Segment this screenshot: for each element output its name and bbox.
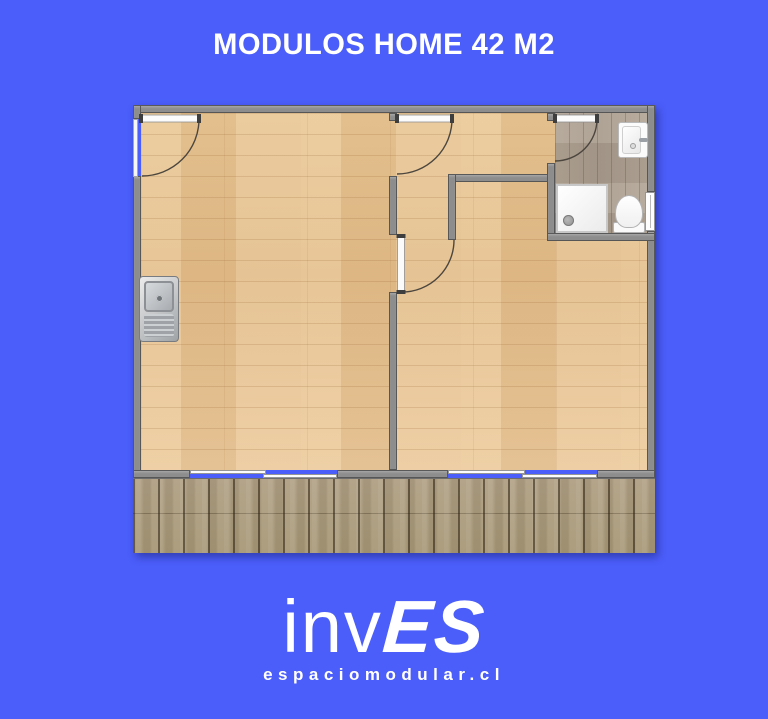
logo-wordmark: invES (0, 590, 768, 664)
sink-drain (156, 295, 163, 302)
door-hinge (397, 234, 406, 238)
logo-text-bold: ES (380, 590, 488, 664)
hall-door-leaf (397, 115, 452, 122)
door-cap (450, 114, 454, 123)
sink-basin (144, 281, 174, 312)
logo-domain: espaciomodular.cl (0, 665, 768, 685)
bedroom-door-arc (402, 240, 454, 292)
washbasin-icon (618, 122, 648, 158)
washbasin-drain (630, 143, 636, 149)
shower-drain (563, 215, 574, 226)
entrance-door-leaf (141, 115, 199, 122)
bathroom-door-leaf (555, 115, 597, 122)
toilet-icon (615, 195, 643, 228)
floor-plan (133, 105, 655, 553)
sink-drainboard (144, 314, 174, 337)
door-swings (133, 105, 655, 553)
logo: invES espaciomodular.cl (0, 590, 768, 685)
poster-background: MODULOS HOME 42 M2 (0, 0, 768, 719)
door-hinge (553, 114, 557, 123)
shower-tray-icon (556, 184, 608, 233)
door-cap (595, 114, 599, 123)
door-cap (397, 290, 406, 294)
page-title: MODULOS HOME 42 M2 (12, 28, 757, 62)
door-hinge (139, 114, 143, 123)
door-hinge (395, 114, 399, 123)
bathroom-door-arc (555, 119, 597, 161)
entrance-door-arc (142, 119, 199, 176)
washbasin-faucet (639, 138, 648, 142)
bedroom-door-leaf (398, 236, 405, 292)
hall-door-arc (397, 119, 452, 174)
kitchen-sink-icon (139, 276, 179, 342)
door-cap (197, 114, 201, 123)
logo-text-light: inv (282, 585, 383, 668)
